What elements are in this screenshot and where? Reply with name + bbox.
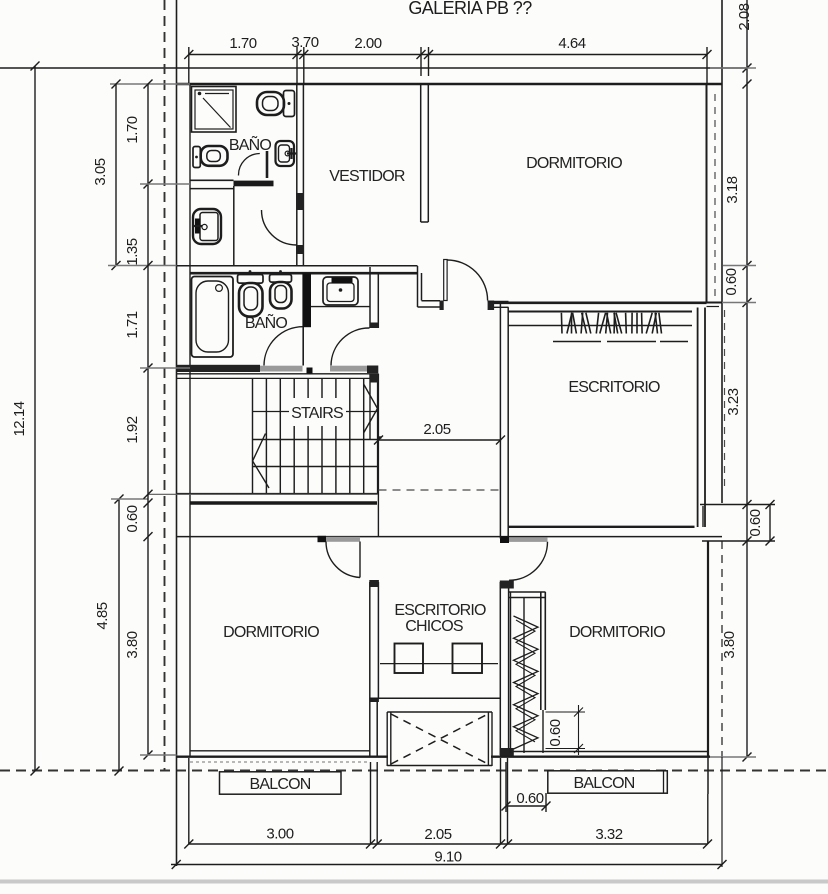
svg-text:BAÑO: BAÑO [229, 134, 271, 154]
svg-text:0.60: 0.60 [516, 790, 543, 807]
svg-text:ESCRITORIO: ESCRITORIO [568, 379, 660, 396]
svg-text:3.32: 3.32 [595, 826, 622, 843]
svg-text:ESCRITORIO: ESCRITORIO [394, 602, 486, 619]
svg-text:3.05: 3.05 [92, 158, 109, 185]
svg-text:BALCON: BALCON [574, 775, 635, 792]
svg-text:9.10: 9.10 [434, 849, 461, 866]
svg-text:4.64: 4.64 [558, 35, 585, 52]
svg-text:2.08: 2.08 [736, 3, 753, 30]
svg-text:1.70: 1.70 [229, 35, 256, 52]
svg-text:0.60: 0.60 [747, 509, 764, 536]
svg-text:BALCON: BALCON [250, 776, 311, 793]
svg-text:1.71: 1.71 [124, 311, 141, 338]
svg-text:1.92: 1.92 [124, 416, 141, 443]
svg-text:0.60: 0.60 [723, 268, 740, 295]
svg-text:3.00: 3.00 [266, 826, 293, 843]
svg-text:DORMITORIO: DORMITORIO [223, 624, 319, 641]
svg-text:GALERIA PB ??: GALERIA PB ?? [408, 0, 532, 18]
svg-text:12.14: 12.14 [11, 401, 28, 436]
svg-text:DORMITORIO: DORMITORIO [569, 624, 665, 641]
svg-text:VESTIDOR: VESTIDOR [329, 168, 405, 185]
svg-text:2.05: 2.05 [423, 421, 450, 438]
svg-text:CHICOS: CHICOS [405, 618, 463, 635]
svg-text:STAIRS: STAIRS [291, 405, 343, 422]
svg-text:0.60: 0.60 [547, 719, 564, 746]
svg-text:3.80: 3.80 [721, 631, 738, 658]
svg-text:3.18: 3.18 [724, 176, 741, 203]
svg-text:3.80: 3.80 [124, 631, 141, 658]
svg-text:1.70: 1.70 [124, 116, 141, 143]
svg-text:0.60: 0.60 [124, 505, 141, 532]
svg-text:3.70: 3.70 [291, 34, 318, 51]
svg-text:2.05: 2.05 [424, 826, 451, 843]
svg-text:DORMITORIO: DORMITORIO [526, 155, 622, 172]
svg-text:4.85: 4.85 [94, 602, 111, 629]
svg-text:1.35: 1.35 [124, 238, 141, 265]
svg-text:3.23: 3.23 [725, 388, 742, 415]
svg-text:2.00: 2.00 [354, 35, 381, 52]
svg-text:BAÑO: BAÑO [245, 312, 287, 332]
